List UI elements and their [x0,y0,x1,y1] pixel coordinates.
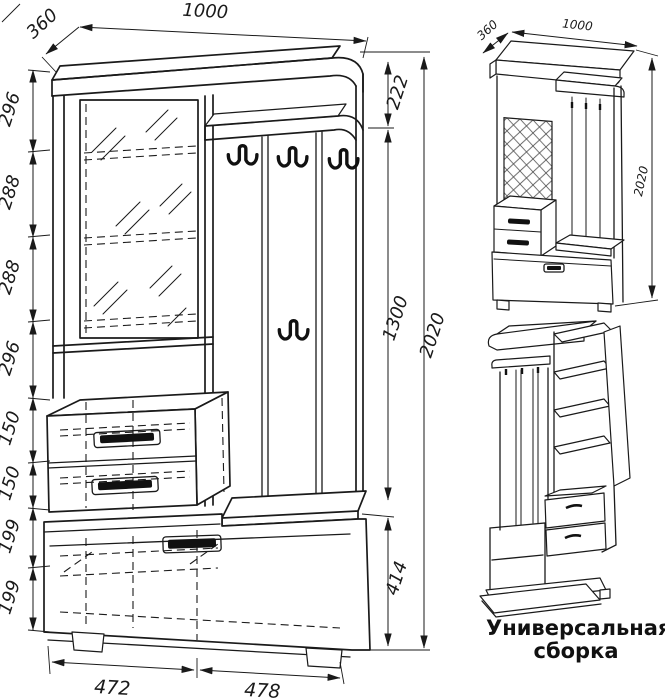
drawing-svg: 296 288 288 296 150 150 199 199 1000 360… [0,0,665,700]
dim-label-288-a: 288 [0,173,25,212]
hook-panel-slats [262,132,322,502]
coat-hook-icon [228,146,257,164]
dim-label-296-top: 296 [0,90,25,129]
open-foot [600,589,610,599]
coat-hook-icon [329,150,358,168]
dim-label-199-b: 199 [0,578,25,617]
hidden-shelves [84,146,196,328]
dim-label-width: 1000 [182,0,229,23]
dim-label-472: 472 [94,676,131,700]
iso-dim-width: 1000 [561,16,593,33]
iso-drawer-unit [494,196,556,256]
mirror-bottom-shelf [53,337,213,353]
coat-hooks [228,146,358,339]
dim-label-2020: 2020 [416,310,450,360]
iso-dim-height: 2020 [631,164,651,197]
base-cabinet [44,514,370,668]
dim-label-296-bottom: 296 [0,339,25,378]
mirror-glass-hatching [92,110,191,326]
open-shelf-column [554,323,630,492]
iso-base-cabinet [492,252,613,312]
mirror-panel [80,100,198,338]
furniture-drawing-page: 296 288 288 296 150 150 199 199 1000 360… [0,0,665,700]
right-side-panel [356,74,363,498]
dim-label-288-b: 288 [0,258,25,297]
drawer-unit [47,392,230,512]
assembly-caption: Универсальная сборка [486,617,665,662]
top-shelf [52,46,363,96]
iso-view-open [480,321,630,617]
dim-label-222: 222 [382,73,413,112]
iso-top-shelf-cap [490,60,496,78]
dim-label-414: 414 [381,559,412,598]
open-hook-panel [500,368,548,530]
dim-label-150-b: 150 [0,464,25,503]
coat-hook-icon [278,148,307,166]
iso-dim-depth: 360 [474,17,501,43]
iso-view-assembled: 360 1000 2020 [474,16,658,312]
coat-hook-icon [279,321,308,339]
hat-shelf [205,104,363,140]
front-view: 296 288 288 296 150 150 199 199 1000 360… [0,0,450,700]
dim-label-150-a: 150 [0,409,25,448]
dim-label-1300: 1300 [379,293,413,343]
iso-hook-slats [572,97,600,249]
dim-label-199-a: 199 [0,517,25,556]
dim-label-depth: 360 [23,5,63,44]
dim-label-478: 478 [244,679,281,700]
open-drawers [545,486,606,556]
